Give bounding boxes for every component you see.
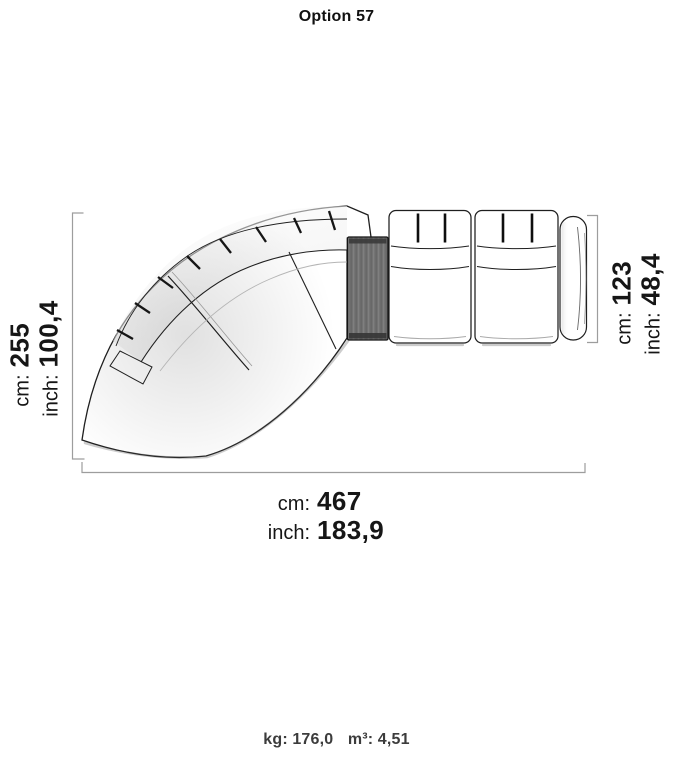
- weight-value: 176,0: [292, 731, 333, 748]
- weight-volume-note: kg: 176,0 m³: 4,51: [0, 731, 673, 749]
- right-armrest: [560, 217, 587, 341]
- armrest-seam: [578, 227, 581, 330]
- module-outline: [475, 211, 558, 344]
- unit-inch: inch:: [38, 375, 67, 437]
- dimension-row-inch: inch: 100,4: [35, 252, 64, 437]
- dimension-row-cm: cm: 467: [248, 487, 433, 516]
- backrest-stitches: [503, 214, 532, 243]
- right-dimension-bracket: [587, 216, 598, 343]
- connector-table: [348, 237, 389, 340]
- left-dimension-bracket: [73, 213, 85, 459]
- sofa-top-view-diagram: [0, 0, 673, 762]
- right-dimension-label: cm: 123 inch: 48,4: [608, 190, 666, 375]
- value-cm: 467: [310, 487, 362, 516]
- curved-chaise-module: [35, 185, 371, 485]
- seat-front-line: [480, 337, 553, 339]
- value-inch: 183,9: [310, 516, 384, 545]
- backrest-stitches: [418, 214, 445, 243]
- dimension-row-inch: inch: 183,9: [248, 516, 433, 545]
- seat-module-1: [389, 211, 471, 346]
- bottom-dimension-label: cm: 467 inch: 183,9: [248, 487, 433, 545]
- seat-shadow: [35, 185, 335, 485]
- backrest-front-line: [391, 246, 469, 249]
- module-outline: [389, 211, 471, 344]
- unit-inch: inch:: [640, 313, 669, 375]
- table-front-rim: [349, 333, 387, 339]
- left-dimension-label: cm: 255 inch: 100,4: [6, 252, 64, 437]
- dimension-row-cm: cm: 123: [608, 190, 637, 375]
- table-back-rim: [349, 239, 387, 244]
- value-inch: 100,4: [35, 300, 64, 374]
- table-top: [348, 237, 389, 340]
- volume-value: 4,51: [378, 731, 410, 748]
- backrest-front-line: [477, 246, 556, 249]
- lumbar-cushion-line: [477, 267, 556, 270]
- value-cm: 255: [6, 323, 35, 375]
- dimension-row-cm: cm: 255: [6, 252, 35, 437]
- dimension-row-inch: inch: 48,4: [637, 190, 666, 375]
- lumbar-cushion-line: [391, 267, 469, 270]
- unit-inch: inch:: [248, 519, 310, 548]
- value-inch: 48,4: [637, 253, 666, 312]
- unit-cm: cm:: [248, 490, 310, 519]
- seat-front-line: [394, 337, 466, 339]
- armrest-edge-highlight: [585, 233, 587, 324]
- armrest-shading: [562, 222, 569, 334]
- seat-module-2: [475, 211, 558, 346]
- weight-unit-label: kg:: [263, 731, 288, 748]
- bottom-dimension-bracket: [82, 462, 585, 473]
- unit-cm: cm:: [611, 313, 640, 375]
- value-cm: 123: [608, 261, 637, 313]
- unit-cm: cm:: [9, 375, 38, 437]
- volume-unit-label: m³:: [348, 731, 373, 748]
